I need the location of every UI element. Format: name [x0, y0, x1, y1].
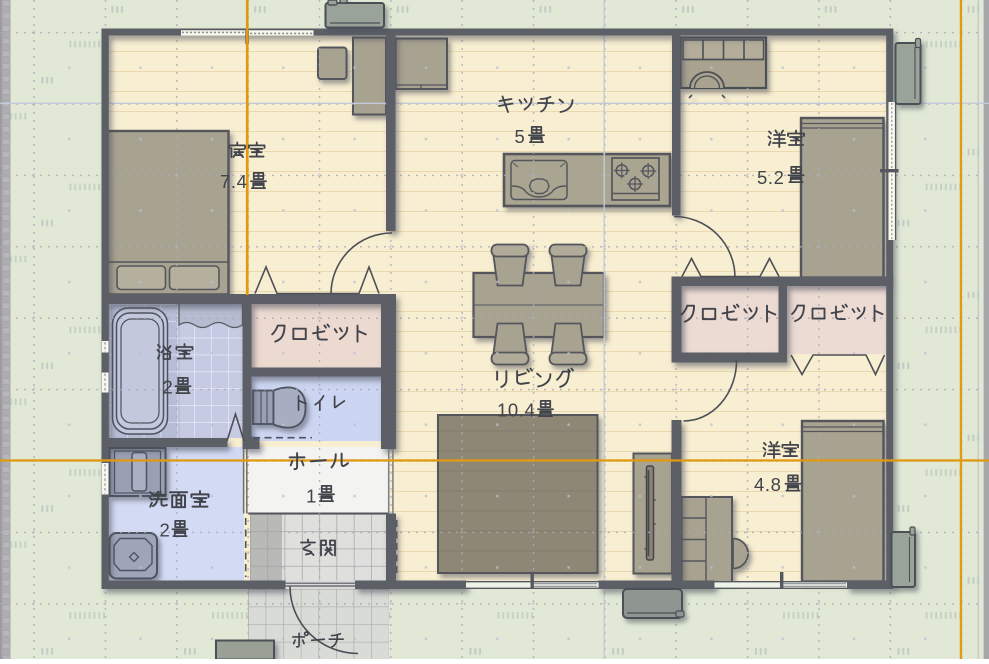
- svg-text:10.4: 10.4: [497, 400, 535, 421]
- svg-text:1: 1: [306, 486, 317, 507]
- svg-text:7.4: 7.4: [220, 171, 248, 192]
- svg-text:2: 2: [163, 377, 174, 398]
- svg-text:4.8: 4.8: [754, 474, 782, 495]
- svg-text:2: 2: [160, 520, 171, 541]
- svg-text:5: 5: [515, 126, 526, 147]
- svg-text:5.2: 5.2: [757, 167, 785, 188]
